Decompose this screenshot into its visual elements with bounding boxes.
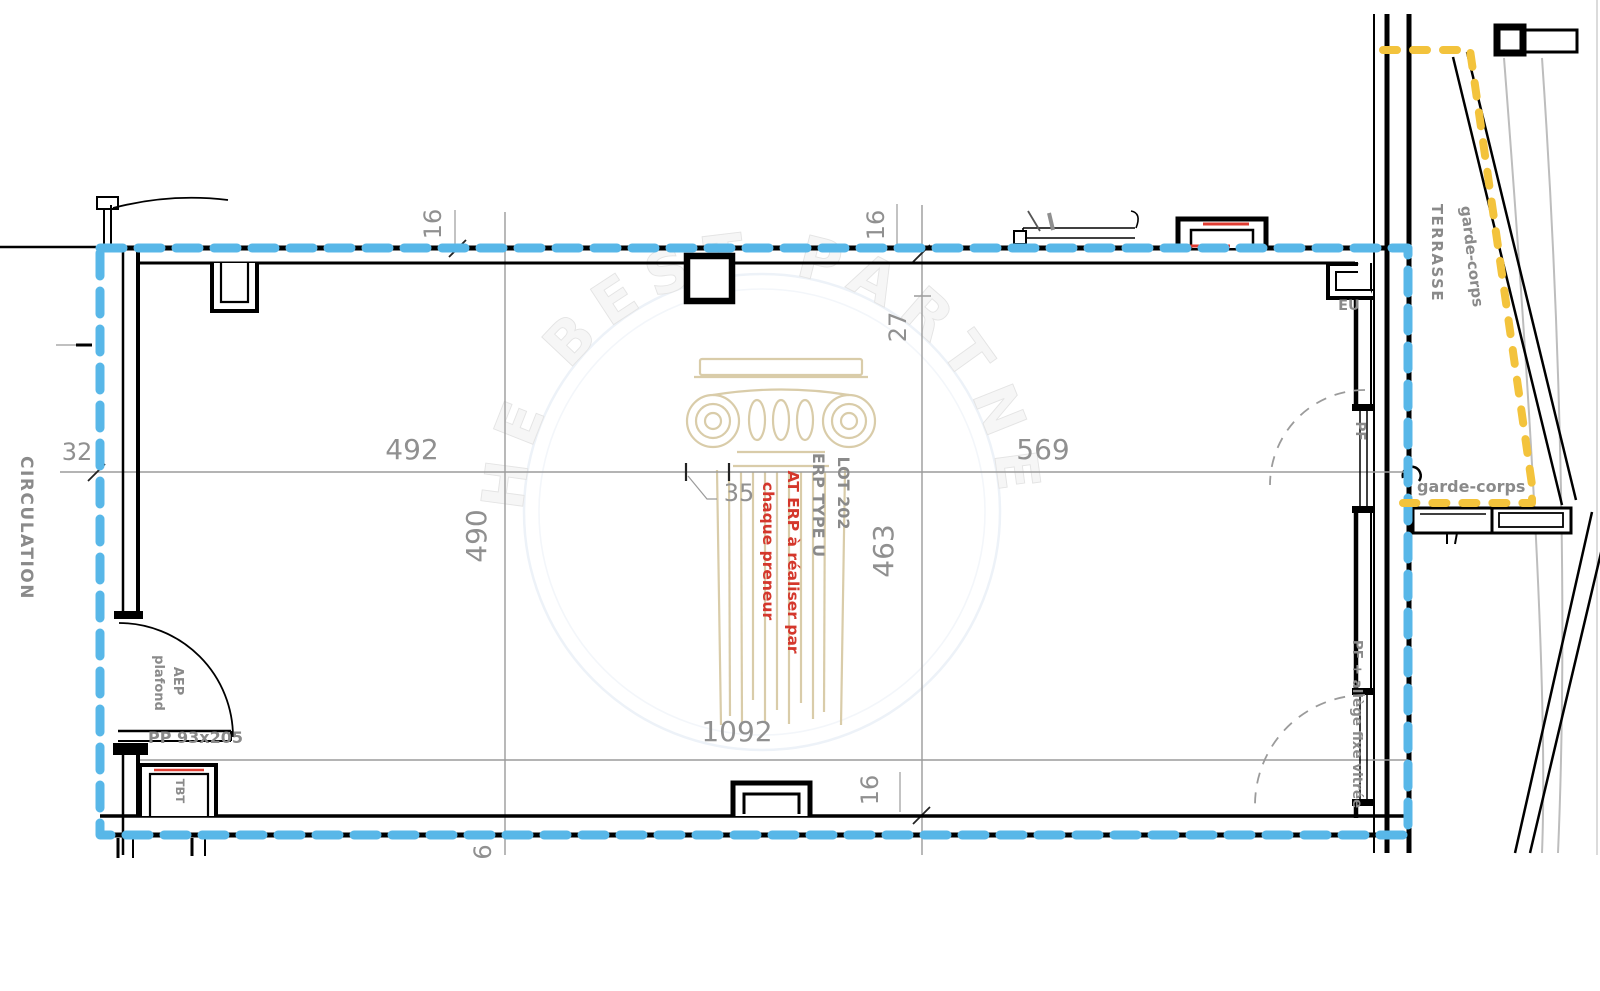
dim-35: 35 <box>724 479 755 507</box>
dim-16-bottom: 16 <box>856 775 884 806</box>
watermark-emblem: THE BEST PARTNER <box>0 0 1055 750</box>
dim-32: 32 <box>62 438 93 466</box>
counter-fixture <box>1014 211 1138 244</box>
dim-492: 492 <box>385 433 438 466</box>
floor-plan-drawing: THE BEST PARTNER <box>0 0 1600 991</box>
erp-note-line2: chaque preneur <box>759 482 777 621</box>
dim-27: 27 <box>884 312 912 343</box>
garde-corps-horizontal-label: garde-corps <box>1417 477 1525 496</box>
dim-16-top: 16 <box>419 209 447 240</box>
watermark-arc-text: THE BEST PARTNER <box>0 0 1055 513</box>
erp-type: ERP TYPE U <box>809 453 828 557</box>
lot-number: LOT 202 <box>834 456 853 529</box>
terrasse-post <box>1497 27 1523 53</box>
aep-plafond-label: plafond <box>151 655 166 711</box>
niche-eu <box>1328 264 1374 298</box>
terrasse-beam <box>1525 30 1577 52</box>
watermark-column <box>687 359 875 725</box>
pf-label: PF <box>1352 421 1368 440</box>
erp-note-line1: AT ERP à réaliser par <box>784 470 802 653</box>
tbt-label: TBT <box>173 779 187 804</box>
balcony-slab <box>1413 508 1571 544</box>
zone-circulation: CIRCULATION <box>16 456 36 600</box>
pillar-square <box>687 256 732 301</box>
circulation-door <box>97 197 228 248</box>
aep-label: AEP <box>170 667 185 695</box>
garde-corps-diagonal-label: garde-corps <box>1457 205 1487 308</box>
dim-569: 569 <box>1016 433 1069 466</box>
dim-partial: 6 <box>469 844 497 859</box>
dim-463: 463 <box>867 524 900 577</box>
floor-plan-page: THE BEST PARTNER <box>0 0 1600 991</box>
dim-490: 490 <box>460 509 493 562</box>
pf-allege-label: PF + allège fixe vitrée <box>1349 640 1365 808</box>
window-pf <box>1270 390 1374 513</box>
circulation-side <box>0 197 228 345</box>
top-fixtures <box>1014 211 1266 248</box>
zone-terrasse: TERRASSE <box>1428 204 1446 302</box>
eu-label: EU <box>1338 298 1360 314</box>
door-size-label: PP 93x205 <box>148 728 243 747</box>
dim-1092: 1092 <box>701 715 772 748</box>
dim-16-right: 16 <box>862 210 890 241</box>
